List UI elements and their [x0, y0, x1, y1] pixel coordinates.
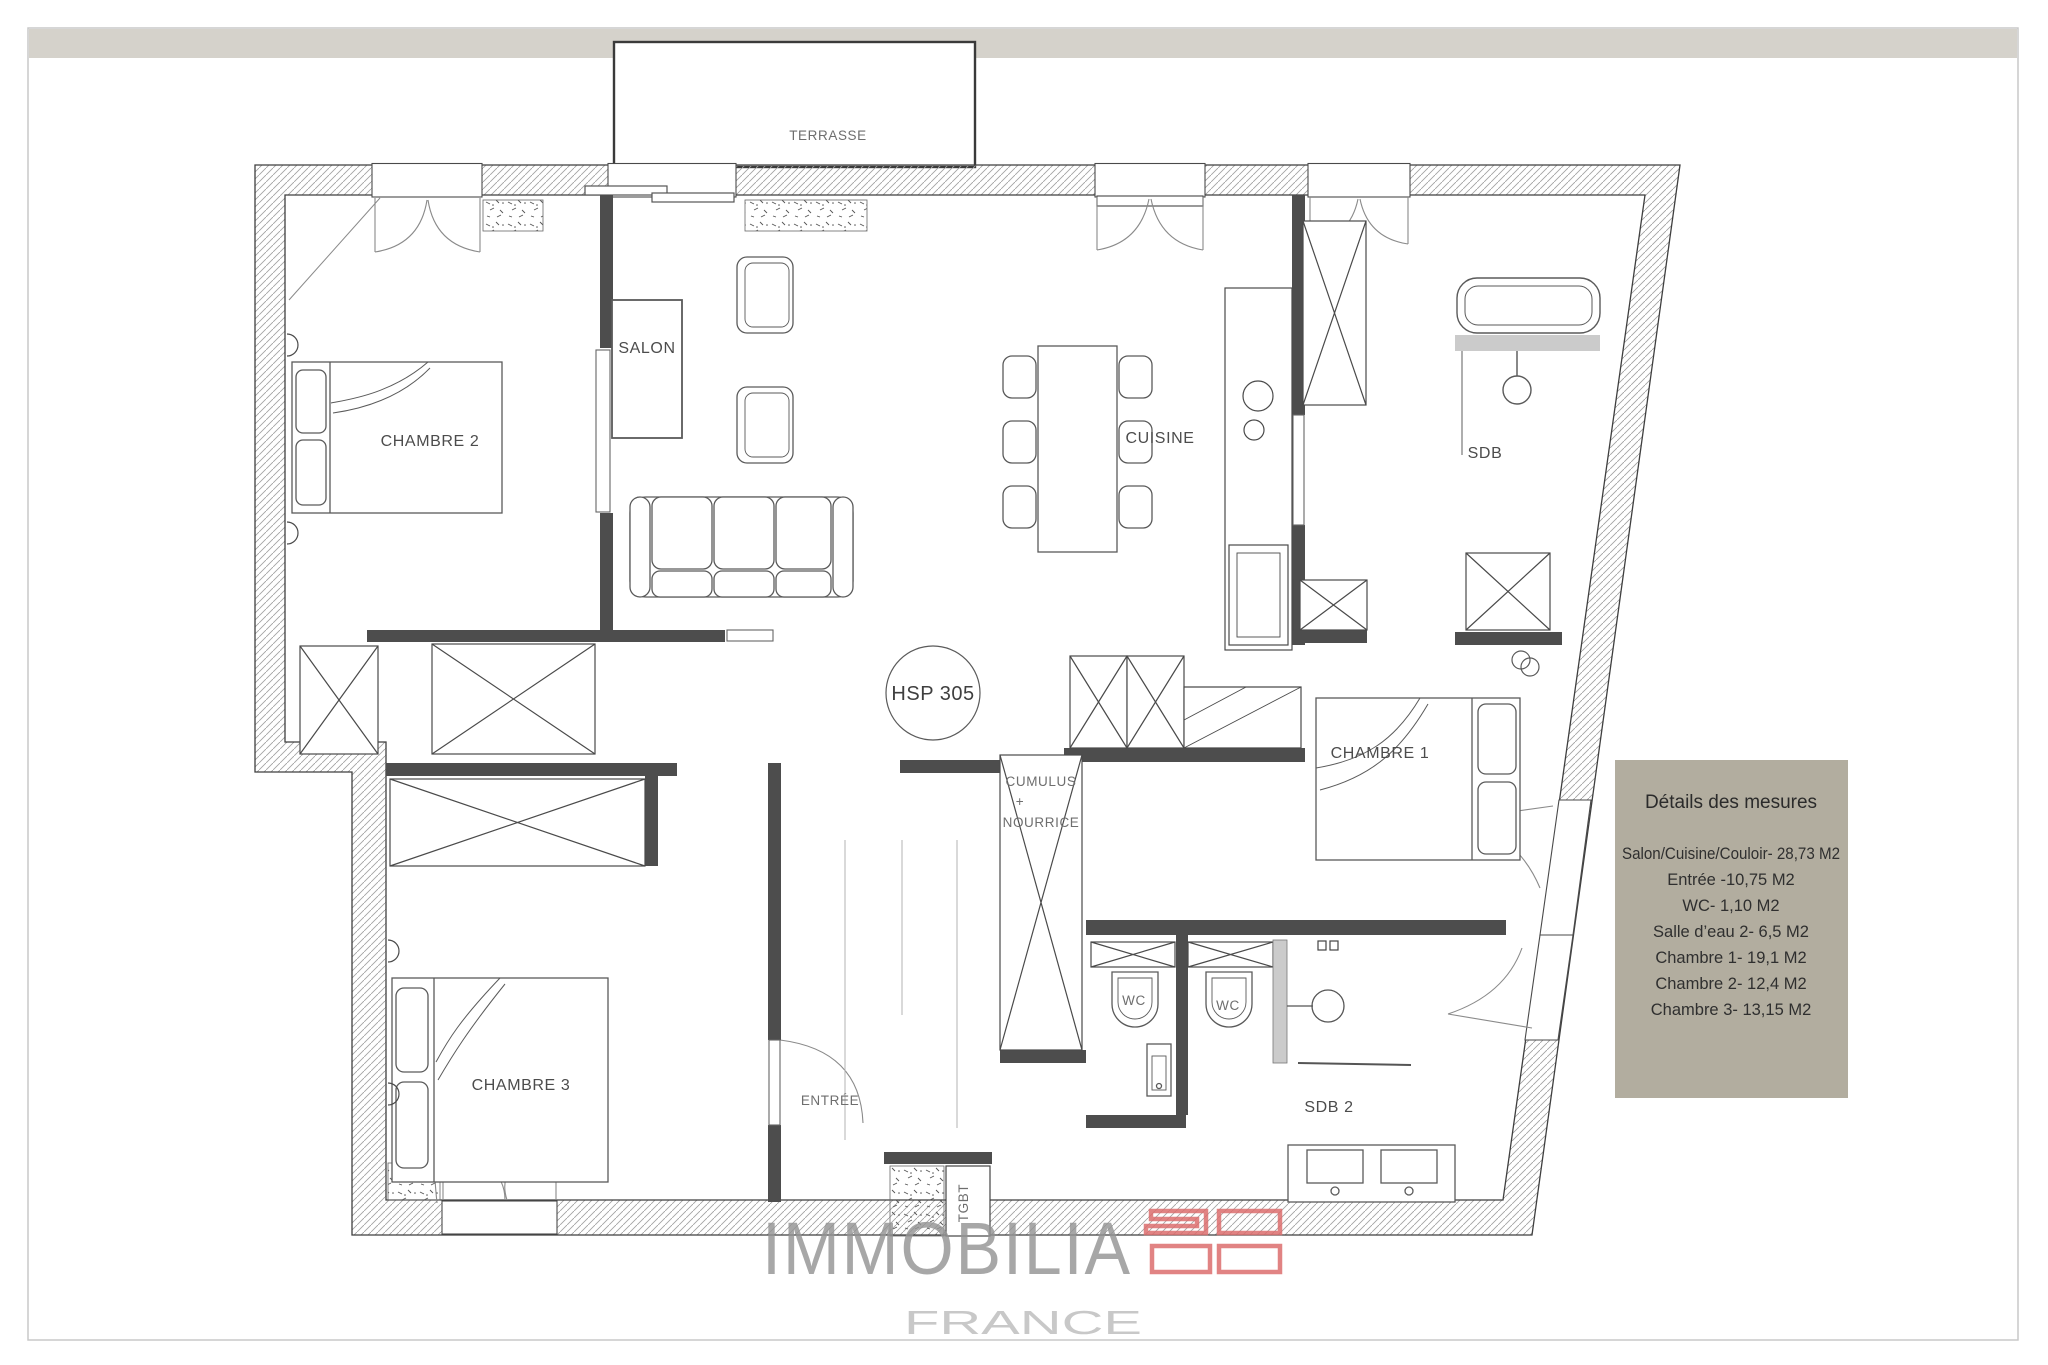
brand-country: FRANCE: [904, 1304, 1142, 1341]
top-band: [29, 29, 2017, 58]
cumulus-closet: [1000, 755, 1082, 1050]
cuisine-label: CUISINE: [1125, 430, 1194, 447]
measure-item: Chambre 3- 13,15 M2: [1651, 1001, 1812, 1019]
measures-panel-title: Détails des mesures: [1645, 792, 1817, 813]
measures-panel: Détails des mesures Salon/Cuisine/Couloi…: [1615, 760, 1848, 1098]
floor-plan-drawing: TERRASSE: [0, 0, 2048, 1365]
wc2-label: WC: [1216, 998, 1240, 1013]
measure-item: Salon/Cuisine/Couloir- 28,73 M2: [1622, 845, 1840, 863]
chambre1-label: CHAMBRE 1: [1331, 745, 1430, 762]
salon-label: SALON: [618, 340, 675, 357]
floor-plan-page: TERRASSE: [0, 0, 2048, 1365]
cabinet-kitchen-1: [1070, 656, 1127, 748]
measure-item: Salle d’eau 2- 6,5 M2: [1653, 923, 1809, 941]
duct-wc2: [1188, 942, 1273, 967]
terrasse: TERRASSE: [614, 42, 975, 167]
closet-sdb: [1466, 553, 1550, 630]
closet-chambre1-b: [1300, 580, 1367, 630]
wardrobe-chambre3: [390, 779, 645, 866]
sdb-label: SDB: [1468, 445, 1503, 462]
brand-wordmark: IMMOBILIA: [762, 1207, 1132, 1290]
svg-text:CUMULUS: CUMULUS: [1006, 774, 1077, 789]
dining-set: [1003, 346, 1152, 552]
duct-wc1: [1091, 942, 1175, 967]
chambre3-label: CHAMBRE 3: [472, 1077, 571, 1094]
measure-item: Chambre 2- 12,4 M2: [1655, 975, 1806, 993]
bed-chambre1: [1316, 698, 1520, 860]
closet-corridor-tall: [1303, 221, 1366, 405]
closet-chambre2-right: [432, 644, 595, 754]
closet-chambre2-left: [300, 646, 378, 754]
sdb2-label: SDB 2: [1304, 1099, 1353, 1116]
measure-item: Entrée -10,75 M2: [1667, 871, 1795, 889]
measure-item: WC- 1,10 M2: [1682, 897, 1779, 915]
measure-item: Chambre 1- 19,1 M2: [1655, 949, 1806, 967]
double-vanity: [1288, 1145, 1455, 1202]
svg-text:+: +: [1016, 794, 1024, 809]
entree-label: ENTRÉE: [801, 1093, 859, 1108]
chambre2-label: CHAMBRE 2: [381, 433, 480, 450]
wc1-label: WC: [1122, 993, 1146, 1008]
ceiling-height-badge: HSP 305: [886, 646, 980, 740]
cabinet-kitchen-2: [1127, 656, 1184, 748]
sofa: [630, 497, 853, 597]
terrasse-label: TERRASSE: [789, 128, 867, 143]
svg-text:NOURRICE: NOURRICE: [1003, 815, 1080, 830]
hsp-label: HSP 305: [891, 683, 974, 705]
